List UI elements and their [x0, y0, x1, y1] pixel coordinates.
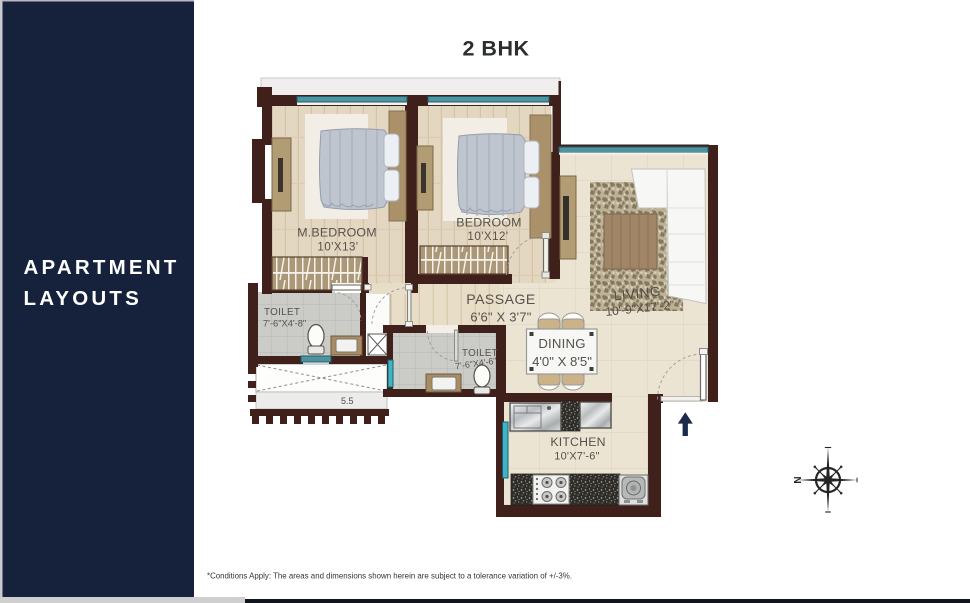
svg-text:DINING: DINING: [538, 336, 585, 351]
svg-text:TOILET: TOILET: [264, 307, 300, 318]
svg-text:4'0" X 8'5": 4'0" X 8'5": [532, 354, 592, 369]
svg-text:5.5: 5.5: [341, 396, 354, 406]
svg-text:LAYOUTS: LAYOUTS: [24, 287, 142, 310]
svg-text:2 BHK: 2 BHK: [462, 37, 529, 61]
svg-text:APARTMENT: APARTMENT: [24, 256, 180, 279]
svg-text:10'X12': 10'X12': [467, 231, 508, 243]
svg-text:PASSAGE: PASSAGE: [466, 291, 535, 307]
svg-text:N: N: [793, 476, 804, 483]
svg-text:6'6" X 3'7": 6'6" X 3'7": [470, 310, 531, 325]
svg-text:BEDROOM: BEDROOM: [456, 216, 521, 230]
svg-text:7'-6"X4'-8": 7'-6"X4'-8": [263, 319, 306, 329]
svg-text:10'X13': 10'X13': [317, 242, 358, 254]
svg-text:KITCHEN: KITCHEN: [550, 435, 605, 449]
svg-text:10'X7'-6": 10'X7'-6": [554, 451, 599, 463]
svg-text:M.BEDROOM: M.BEDROOM: [297, 226, 377, 240]
svg-text:*Conditions Apply: The areas a: *Conditions Apply: The areas and dimensi…: [207, 572, 572, 581]
